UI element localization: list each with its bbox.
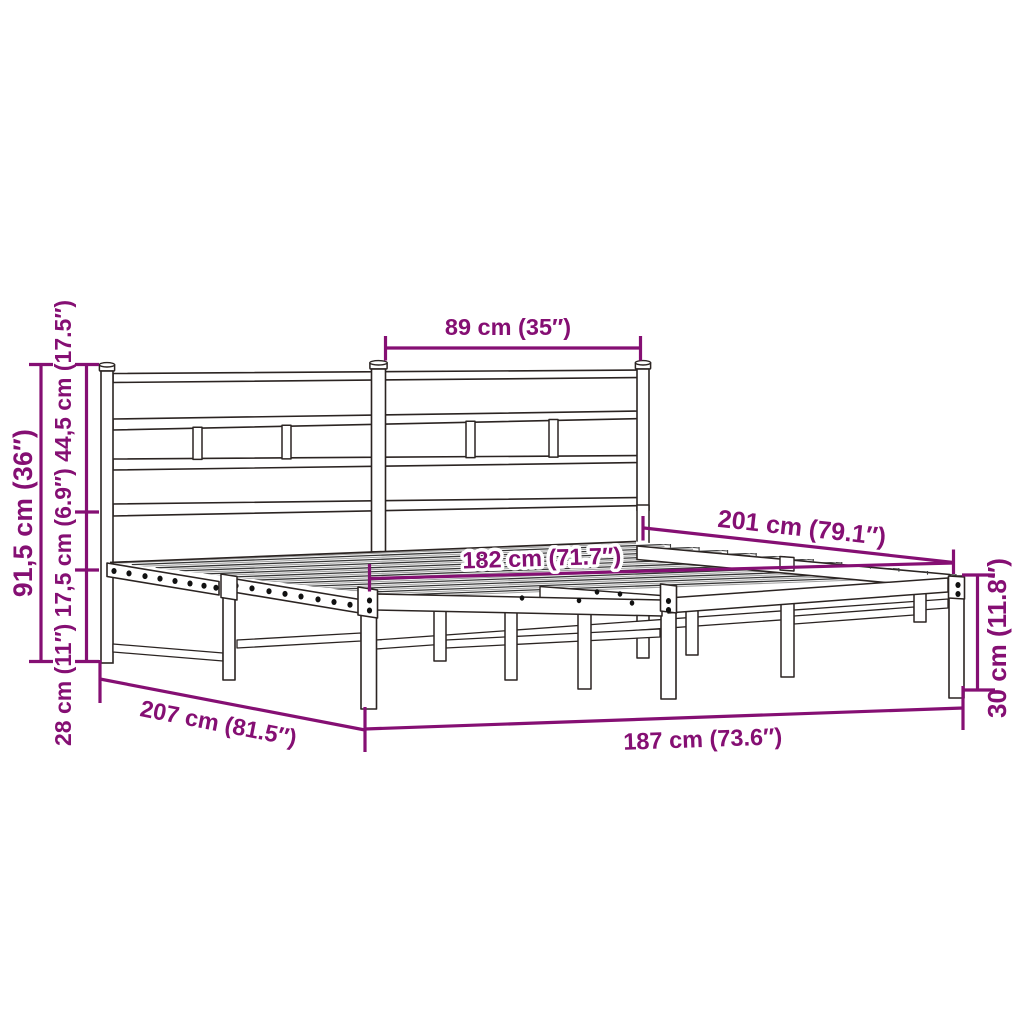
- svg-text:30 cm (11.8″): 30 cm (11.8″): [982, 558, 1012, 718]
- svg-text:91,5 cm (36″): 91,5 cm (36″): [8, 429, 38, 597]
- svg-text:182 cm (71.7″): 182 cm (71.7″): [462, 543, 622, 574]
- svg-text:28 cm (11″) 17,5 cm (6.9″) 44,: 28 cm (11″) 17,5 cm (6.9″) 44,5 cm (17.5…: [50, 300, 76, 746]
- svg-text:89 cm (35″): 89 cm (35″): [445, 314, 571, 340]
- svg-text:187 cm (73.6″): 187 cm (73.6″): [623, 723, 783, 755]
